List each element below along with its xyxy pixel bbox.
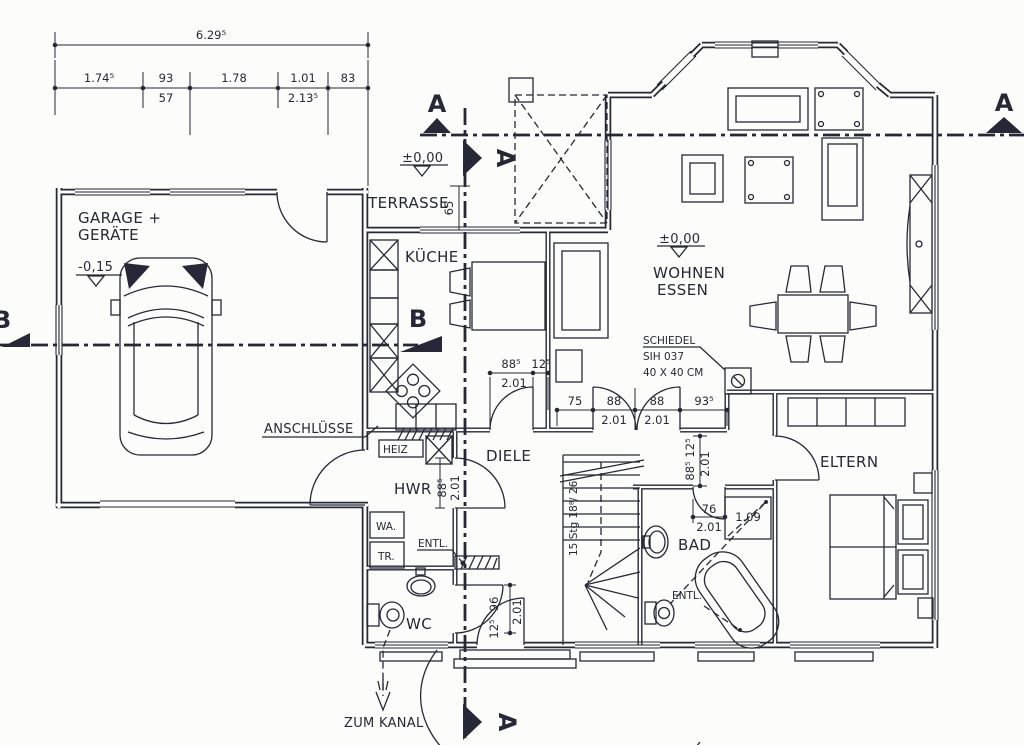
label-entl-hwr: ENTL. bbox=[418, 538, 448, 550]
terrace-overhang bbox=[509, 78, 607, 223]
dim-shower: 1.09 bbox=[735, 510, 761, 524]
label-heiz: HEIZ bbox=[383, 444, 408, 456]
eltern-door bbox=[775, 436, 819, 480]
bay-window-top-2 bbox=[778, 42, 818, 48]
dim-kitchen-w: 88⁵ bbox=[501, 357, 521, 371]
wc-tank bbox=[367, 604, 379, 626]
terrace-post bbox=[509, 78, 533, 102]
label-wa: WA. bbox=[376, 521, 396, 533]
section-letter-a-vtop: A bbox=[491, 149, 519, 168]
label-diele: DIELE bbox=[486, 447, 531, 465]
kitchen-chairs bbox=[450, 268, 470, 328]
section-arrow-a-top bbox=[463, 140, 482, 176]
dim-hall-2h: 2.01 bbox=[601, 413, 627, 427]
section-arrow-a-right bbox=[986, 117, 1022, 133]
dim-entry-w: 96 bbox=[487, 597, 501, 612]
label-anschluesse: ANSCHLÜSSE bbox=[264, 420, 354, 437]
section-letter-b-left: B bbox=[0, 306, 11, 334]
dim-d3: 1.78 bbox=[221, 71, 247, 85]
label-terrasse: TERRASSE bbox=[367, 194, 449, 212]
label-entl-bad: ENTL. bbox=[672, 590, 702, 602]
label-kueche: KÜCHE bbox=[405, 247, 459, 266]
level-garage: -0,15 bbox=[78, 260, 113, 275]
dim-hwr-h: 2.01 bbox=[448, 475, 462, 501]
dining-furniture bbox=[750, 266, 876, 362]
kitchen-table bbox=[472, 262, 545, 330]
dim-d5: 83 bbox=[341, 71, 356, 85]
sill-bad bbox=[698, 652, 754, 661]
stove bbox=[386, 364, 440, 418]
label-wc: WC bbox=[406, 615, 432, 633]
section-letter-a-top-left: A bbox=[428, 90, 447, 118]
floorplan-page: GARAGE + GERÄTE TERRASSE KÜCHE WOHNEN ES… bbox=[0, 0, 1024, 745]
bad-wc bbox=[654, 600, 674, 626]
dim-hall-1: 75 bbox=[568, 394, 583, 408]
dining-table bbox=[778, 295, 848, 333]
sill-diele bbox=[580, 652, 654, 661]
eltern-furniture bbox=[788, 398, 933, 618]
dim-entry-h: 2.01 bbox=[510, 599, 524, 625]
kitchen-counter bbox=[396, 404, 456, 430]
garage-left-window bbox=[56, 305, 62, 355]
label-tr: TR. bbox=[377, 551, 395, 563]
label-schiedel-type: SIH 037 bbox=[643, 351, 684, 363]
section-arrow-a-bottom bbox=[463, 704, 482, 740]
label-bad: BAD bbox=[678, 536, 711, 554]
dim-d4: 1.01 bbox=[290, 71, 316, 85]
dim-eltern-off: 12⁵ bbox=[683, 438, 697, 458]
dim-d2-sub: 57 bbox=[159, 91, 174, 105]
section-letter-b-right: B bbox=[409, 305, 427, 333]
dim-hall-2: 88 bbox=[607, 394, 622, 408]
dim-hall-3: 88 bbox=[650, 394, 665, 408]
dimensions bbox=[53, 32, 730, 635]
dim-hwr-w: 88⁵ bbox=[435, 478, 449, 498]
dim-kitchen-h: 2.01 bbox=[501, 376, 527, 390]
dim-bad-h: 2.01 bbox=[696, 520, 722, 534]
dim-kitchen-pier: 12⁵ bbox=[531, 357, 551, 371]
sofa bbox=[728, 88, 808, 130]
label-stairs: 15 Stg 18⁸/ 26 bbox=[568, 480, 580, 556]
section-arrow-a-left bbox=[423, 118, 451, 133]
section-letter-a-right: A bbox=[995, 89, 1014, 117]
floorplan-drawing: GARAGE + GERÄTE TERRASSE KÜCHE WOHNEN ES… bbox=[0, 0, 1024, 745]
dim-bad-w: 76 bbox=[702, 502, 717, 516]
label-garage-2: GERÄTE bbox=[78, 225, 139, 244]
hwr-door bbox=[455, 458, 505, 508]
bay-window-right bbox=[842, 51, 881, 90]
armchair bbox=[815, 88, 863, 130]
garage-gate bbox=[100, 501, 235, 507]
entry-step-1 bbox=[460, 650, 570, 659]
wohnen-west-window bbox=[605, 140, 611, 210]
dining-chairs bbox=[750, 266, 876, 362]
coffee-table bbox=[745, 157, 793, 203]
label-schiedel: SCHIEDEL bbox=[643, 335, 695, 347]
dim-eltern-h: 2.01 bbox=[698, 451, 712, 477]
dim-total: 6.29⁵ bbox=[196, 28, 227, 42]
kitchen-door bbox=[490, 387, 533, 430]
dim-hall-3h: 2.01 bbox=[644, 413, 670, 427]
dim-eltern-w: 88⁵ bbox=[683, 461, 697, 481]
sill-eltern bbox=[795, 652, 873, 661]
label-wohnen: WOHNEN bbox=[653, 264, 725, 282]
east-window-1 bbox=[932, 165, 938, 330]
label-zum-kanal: ZUM KANAL bbox=[344, 716, 424, 731]
dim-d2: 93 bbox=[159, 71, 174, 85]
entry-step-2 bbox=[454, 659, 576, 668]
dim-terrace-post: 65 bbox=[442, 201, 456, 216]
sideboard bbox=[910, 175, 932, 313]
porch-arc bbox=[421, 650, 700, 745]
label-eltern: ELTERN bbox=[820, 453, 878, 471]
tv-cabinet bbox=[682, 155, 723, 202]
level-wohnen: ±0,00 bbox=[659, 232, 700, 247]
dim-entry-off: 12⁵ bbox=[487, 619, 501, 639]
garage-side-door bbox=[277, 192, 327, 242]
car bbox=[111, 258, 221, 455]
south-window-wc bbox=[375, 642, 448, 648]
garage-house-door bbox=[310, 450, 365, 505]
label-schiedel-size: 40 X 40 CM bbox=[643, 367, 703, 379]
label-essen: ESSEN bbox=[657, 281, 708, 299]
bay-window-top-1 bbox=[715, 42, 752, 48]
level-terrasse: ±0,00 bbox=[402, 151, 443, 166]
label-garage-1: GARAGE + bbox=[78, 209, 161, 227]
dim-hall-4: 93⁵ bbox=[694, 394, 714, 408]
garage-window-2 bbox=[170, 189, 245, 195]
label-hwr: HWR bbox=[394, 480, 432, 498]
wohnen-shelf bbox=[556, 350, 582, 382]
labels: GARAGE + GERÄTE TERRASSE KÜCHE WOHNEN ES… bbox=[0, 28, 1014, 732]
south-window-diele bbox=[575, 642, 660, 648]
wc-toilet bbox=[380, 602, 404, 628]
section-letter-a-vbottom: A bbox=[493, 713, 521, 732]
stool-1 bbox=[914, 473, 932, 493]
garage-window-1 bbox=[75, 189, 150, 195]
dim-d4-sub: 2.13⁵ bbox=[288, 91, 319, 105]
dim-d1: 1.74⁵ bbox=[84, 71, 115, 85]
south-window-bad bbox=[695, 642, 760, 648]
stool-2 bbox=[918, 598, 933, 618]
south-window-eltern bbox=[790, 642, 880, 648]
